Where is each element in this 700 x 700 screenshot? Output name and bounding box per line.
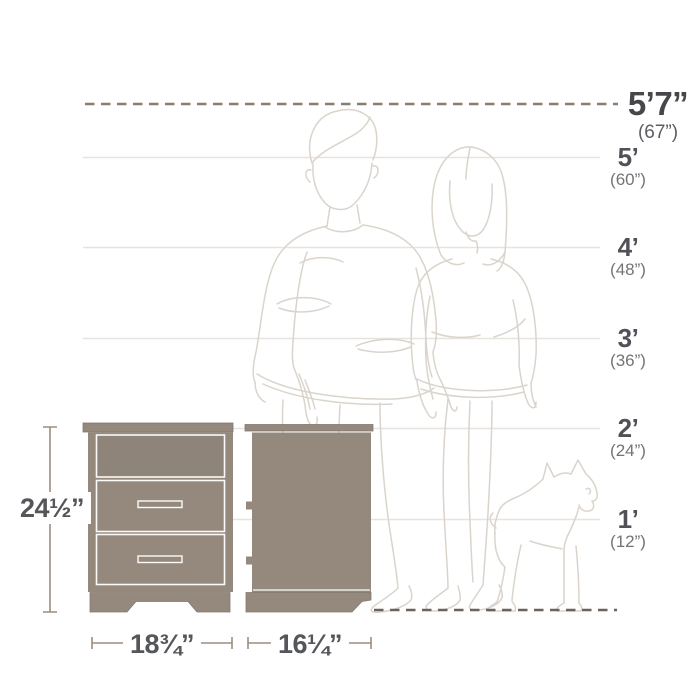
- scale-feet-label: 1’: [586, 506, 670, 532]
- scale-inches-label: (60”): [586, 170, 670, 190]
- drawer-handle-bottom: [138, 556, 182, 563]
- scale-inches-label: (24”): [586, 441, 670, 461]
- dimension-diagram: 5’7” (67”) 5’ (60”) 4’ (48”) 3’ (36”) 2’…: [0, 0, 700, 700]
- side-handle-tab-bottom: [246, 557, 252, 565]
- scale-label-2ft: 2’ (24”): [586, 415, 670, 461]
- scale-inches-label: (12”): [586, 532, 670, 552]
- front-base-plinth: [90, 593, 230, 613]
- drawer-handle-top: [138, 501, 182, 508]
- nightstand-front-view: [83, 423, 233, 612]
- scale-label-4ft: 4’ (48”): [586, 234, 670, 280]
- front-top-panel: [83, 423, 233, 432]
- woman-figure: [411, 147, 536, 611]
- scale-inches-label: (67”): [612, 121, 700, 144]
- scale-feet-label: 3’: [586, 325, 670, 351]
- scale-feet-label: 2’: [586, 415, 670, 441]
- scale-feet-label: 5’7”: [612, 87, 700, 121]
- height-dimension-label: 24½”: [13, 492, 91, 524]
- width-dimension-label: 18¾”: [123, 628, 201, 660]
- dog-figure: [488, 460, 598, 611]
- nightstand-side-view: [245, 425, 373, 613]
- scale-label-5ft: 5’ (60”): [586, 144, 670, 190]
- side-base-plinth: [246, 593, 371, 613]
- scale-label-1ft: 1’ (12”): [586, 506, 670, 552]
- scale-inches-label: (48”): [586, 260, 670, 280]
- scale-feet-label: 5’: [586, 144, 670, 170]
- scale-label-5ft7: 5’7” (67”): [612, 87, 700, 144]
- side-handle-tab-top: [246, 502, 252, 510]
- scale-inches-label: (36”): [586, 351, 670, 371]
- side-top-lip: [245, 425, 373, 432]
- scale-feet-label: 4’: [586, 234, 670, 260]
- front-open-shelf: [97, 435, 225, 477]
- depth-dimension-label: 16¼”: [271, 628, 349, 660]
- scale-label-3ft: 3’ (36”): [586, 325, 670, 371]
- side-body: [252, 433, 371, 593]
